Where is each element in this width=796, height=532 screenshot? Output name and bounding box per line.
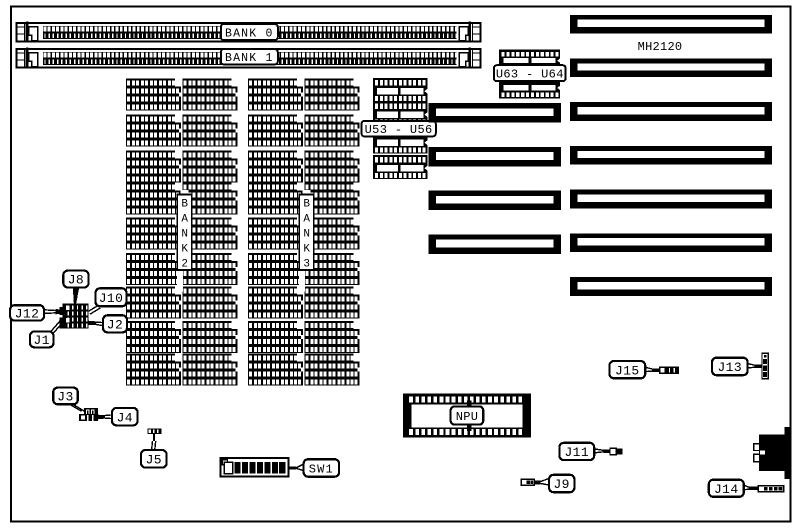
- svg-text:MH2120: MH2120: [638, 40, 683, 54]
- svg-text:J3: J3: [57, 390, 73, 405]
- svg-text:J4: J4: [117, 410, 133, 425]
- svg-text:3: 3: [303, 259, 310, 271]
- svg-text:J8: J8: [68, 273, 84, 288]
- svg-text:N: N: [303, 229, 310, 241]
- svg-text:J2: J2: [107, 318, 123, 333]
- svg-text:SW1: SW1: [309, 462, 334, 476]
- svg-text:A: A: [181, 214, 188, 226]
- svg-text:NPU: NPU: [456, 410, 479, 424]
- svg-text:J15: J15: [615, 363, 640, 378]
- svg-text:A: A: [303, 214, 310, 226]
- svg-text:B: B: [181, 199, 188, 211]
- svg-text:J9: J9: [553, 477, 569, 492]
- svg-text:J13: J13: [717, 360, 742, 375]
- svg-text:J10: J10: [99, 291, 124, 306]
- svg-text:J14: J14: [714, 482, 739, 497]
- svg-text:2: 2: [181, 259, 188, 271]
- svg-text:K: K: [303, 244, 310, 256]
- svg-text:U53 - U56: U53 - U56: [365, 123, 433, 137]
- svg-text:J11: J11: [564, 445, 589, 460]
- svg-text:J12: J12: [15, 307, 40, 322]
- svg-text:N: N: [181, 229, 188, 241]
- svg-text:J1: J1: [34, 333, 50, 348]
- svg-text:B: B: [303, 199, 310, 211]
- svg-text:K: K: [181, 244, 188, 256]
- svg-text:U63 - U64: U63 - U64: [496, 68, 564, 82]
- svg-text:J5: J5: [146, 452, 162, 467]
- svg-text:BANK 1: BANK 1: [225, 52, 274, 65]
- svg-text:BANK 0: BANK 0: [225, 27, 274, 40]
